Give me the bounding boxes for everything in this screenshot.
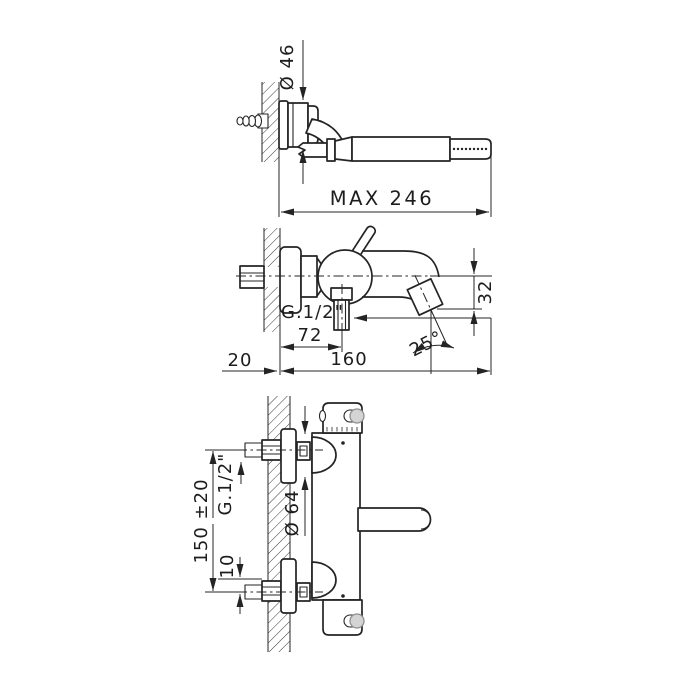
hex-nut bbox=[262, 581, 281, 601]
dim-diameter-64: Ø 64 bbox=[282, 490, 303, 537]
drawing-sheet: Ø 46 MAX 246 bbox=[0, 0, 700, 700]
spout-outlet bbox=[403, 270, 443, 317]
wall-flange bbox=[281, 429, 296, 483]
wall-flange bbox=[281, 559, 296, 613]
thermostat-knob bbox=[320, 403, 365, 433]
hose-barb-fitting bbox=[237, 114, 268, 128]
view-bath-spout: 32 25° G.1/2" 72 20 160 bbox=[222, 225, 496, 375]
wall-section bbox=[263, 228, 281, 375]
view-thermostatic-mixer: 150 ±20 G.1/2" 10 Ø 64 bbox=[191, 396, 431, 652]
spout-top bbox=[362, 251, 439, 277]
flow-knob bbox=[323, 600, 364, 635]
flow-handle bbox=[358, 508, 431, 531]
inlet-hex-nut bbox=[240, 266, 264, 288]
safety-button bbox=[350, 409, 364, 423]
dim-thread-g12: G.1/2" bbox=[281, 302, 344, 323]
dim-10: 10 bbox=[217, 554, 238, 579]
dim-150-pm20: 150 ±20 bbox=[191, 478, 212, 563]
grip-dots bbox=[453, 148, 487, 150]
dim-thread-g12-bottom: G.1/2" bbox=[215, 453, 236, 516]
dim-diameter-46: Ø 46 bbox=[277, 44, 298, 91]
view-hand-shower-holder: Ø 46 MAX 246 bbox=[237, 40, 491, 217]
dim-160: 160 bbox=[330, 349, 367, 370]
safety-button bbox=[350, 614, 364, 628]
technical-drawing: Ø 46 MAX 246 bbox=[0, 0, 700, 700]
dim-20: 20 bbox=[228, 350, 253, 371]
hand-shower bbox=[298, 137, 491, 161]
wall-section bbox=[262, 82, 279, 217]
dim-spout-drop-32: 32 bbox=[475, 280, 496, 305]
hose-stub bbox=[298, 143, 327, 157]
dim-72: 72 bbox=[298, 325, 323, 346]
dim-max-246: MAX 246 bbox=[330, 187, 434, 210]
